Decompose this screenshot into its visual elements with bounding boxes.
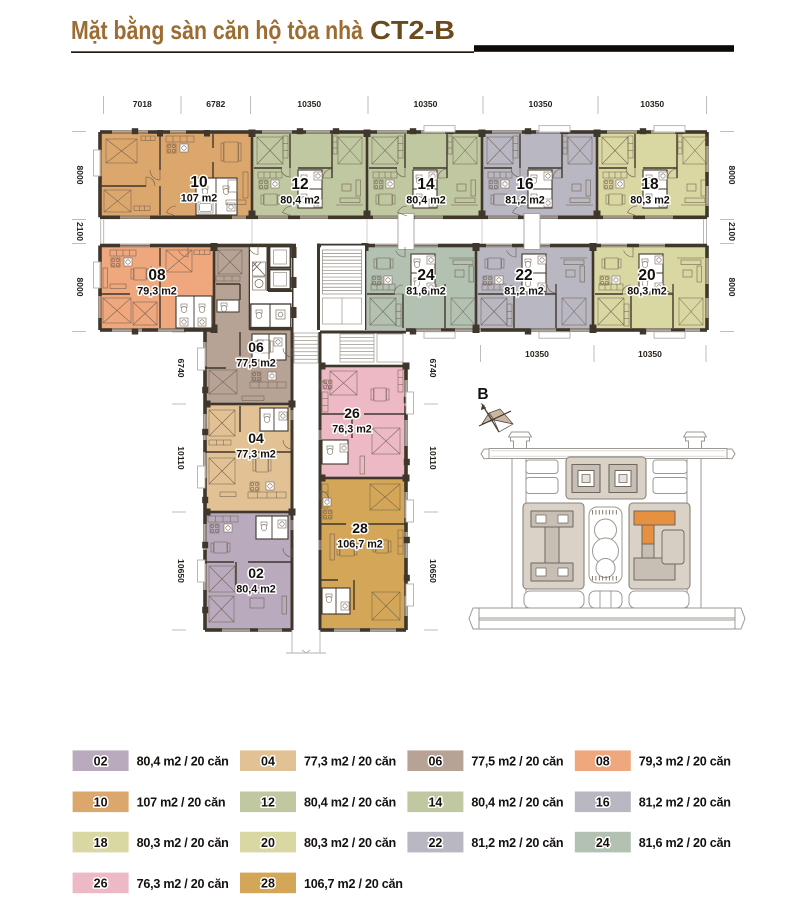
svg-text:2100: 2100	[727, 222, 737, 241]
svg-text:80,3 m2 / 20 căn: 80,3 m2 / 20 căn	[304, 836, 396, 850]
svg-text:24: 24	[596, 836, 610, 850]
svg-text:10650: 10650	[176, 559, 186, 583]
svg-text:26: 26	[344, 405, 360, 421]
svg-text:81,2 m2 / 20 căn: 81,2 m2 / 20 căn	[639, 796, 731, 810]
svg-text:02: 02	[94, 754, 108, 768]
svg-text:6740: 6740	[428, 358, 438, 377]
svg-text:80,4 m2: 80,4 m2	[280, 195, 320, 207]
svg-text:81,6 m2: 81,6 m2	[406, 286, 446, 298]
svg-text:10350: 10350	[529, 99, 553, 109]
svg-text:80,4 m2 / 20 căn: 80,4 m2 / 20 căn	[304, 796, 396, 810]
svg-text:06: 06	[428, 754, 442, 768]
svg-text:CT2-B: CT2-B	[370, 15, 455, 45]
svg-text:10350: 10350	[640, 99, 664, 109]
svg-text:12: 12	[261, 796, 275, 810]
svg-text:77,3 m2 / 20 căn: 77,3 m2 / 20 căn	[304, 755, 396, 769]
svg-text:80,3 m2: 80,3 m2	[630, 195, 670, 207]
svg-text:10350: 10350	[638, 349, 662, 359]
svg-text:06: 06	[248, 339, 264, 355]
svg-text:04: 04	[261, 754, 275, 768]
svg-text:80,3 m2: 80,3 m2	[627, 286, 667, 298]
svg-text:79,3 m2: 79,3 m2	[137, 286, 177, 298]
svg-text:16: 16	[596, 796, 610, 810]
svg-text:14: 14	[417, 176, 435, 193]
svg-text:10110: 10110	[176, 446, 186, 470]
svg-text:107 m2 / 20 căn: 107 m2 / 20 căn	[137, 796, 226, 810]
svg-text:80,4 m2 / 20 căn: 80,4 m2 / 20 căn	[471, 796, 563, 810]
svg-text:107 m2: 107 m2	[181, 193, 218, 205]
svg-text:20: 20	[261, 836, 275, 850]
svg-text:77,5 m2: 77,5 m2	[236, 358, 276, 370]
svg-text:28: 28	[261, 877, 275, 891]
svg-text:77,5 m2 / 20 căn: 77,5 m2 / 20 căn	[471, 755, 563, 769]
svg-text:8000: 8000	[727, 277, 737, 296]
svg-text:18: 18	[641, 176, 659, 193]
svg-text:24: 24	[417, 267, 435, 284]
svg-text:10350: 10350	[525, 349, 549, 359]
svg-text:26: 26	[94, 877, 108, 891]
svg-text:14: 14	[428, 796, 442, 810]
svg-text:81,2 m2: 81,2 m2	[504, 286, 544, 298]
svg-text:2100: 2100	[75, 222, 85, 241]
svg-text:28: 28	[352, 520, 368, 536]
svg-text:02: 02	[248, 565, 264, 581]
svg-text:81,2 m2 / 20 căn: 81,2 m2 / 20 căn	[471, 836, 563, 850]
svg-text:08: 08	[596, 754, 610, 768]
svg-text:8000: 8000	[727, 165, 737, 184]
svg-text:80,4 m2 / 20 căn: 80,4 m2 / 20 căn	[137, 755, 229, 769]
svg-text:106,7 m2 / 20 căn: 106,7 m2 / 20 căn	[304, 877, 403, 891]
svg-text:81,6 m2 / 20 căn: 81,6 m2 / 20 căn	[639, 836, 731, 850]
svg-text:80,4 m2: 80,4 m2	[406, 195, 446, 207]
svg-text:10350: 10350	[297, 99, 321, 109]
svg-text:10350: 10350	[414, 99, 438, 109]
svg-text:22: 22	[515, 267, 532, 284]
svg-text:80,3 m2 / 20 căn: 80,3 m2 / 20 căn	[137, 836, 229, 850]
svg-text:Mặt bằng sàn căn hộ tòa nhà: Mặt bằng sàn căn hộ tòa nhà	[71, 15, 363, 45]
svg-text:20: 20	[638, 267, 655, 284]
svg-text:10: 10	[190, 174, 207, 191]
svg-text:10: 10	[94, 796, 108, 810]
svg-text:16: 16	[516, 176, 534, 193]
svg-text:22: 22	[428, 836, 442, 850]
svg-text:08: 08	[148, 267, 166, 284]
svg-text:76,3 m2: 76,3 m2	[332, 424, 372, 436]
svg-text:10650: 10650	[428, 559, 438, 583]
svg-text:79,3 m2 / 20 căn: 79,3 m2 / 20 căn	[639, 755, 731, 769]
svg-text:6740: 6740	[176, 358, 186, 377]
svg-text:8000: 8000	[75, 277, 85, 296]
svg-text:7018: 7018	[133, 99, 152, 109]
svg-text:80,4 m2: 80,4 m2	[236, 584, 276, 596]
svg-text:6782: 6782	[206, 99, 225, 109]
svg-text:18: 18	[94, 836, 108, 850]
svg-text:77,3 m2: 77,3 m2	[236, 449, 276, 461]
svg-text:76,3 m2 / 20 căn: 76,3 m2 / 20 căn	[137, 877, 229, 891]
svg-text:106,7 m2: 106,7 m2	[337, 539, 383, 551]
svg-text:10110: 10110	[428, 446, 438, 470]
svg-text:B: B	[477, 386, 488, 403]
svg-text:12: 12	[291, 176, 308, 193]
svg-text:8000: 8000	[75, 165, 85, 184]
svg-text:81,2 m2: 81,2 m2	[505, 195, 545, 207]
svg-text:04: 04	[248, 430, 264, 446]
